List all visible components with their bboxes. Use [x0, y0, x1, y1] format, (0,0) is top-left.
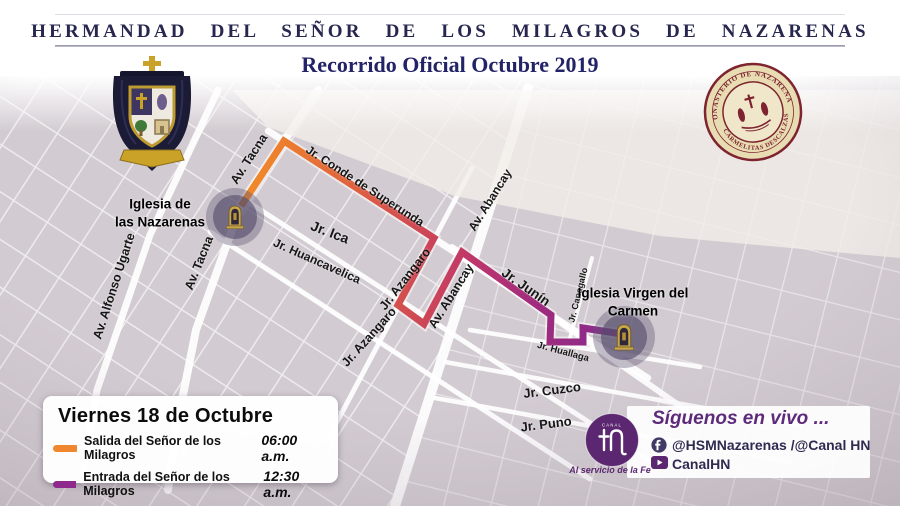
legend-item-time: 12:30 a.m.	[263, 468, 324, 500]
facebook-icon	[651, 437, 667, 453]
salida-route-swatch	[53, 444, 77, 453]
legend-item-entrada: Entrada del Señor de los Milagros 12:30 …	[53, 468, 324, 500]
svg-text:CANAL: CANAL	[602, 423, 622, 428]
facebook-handle: @HSMNazarenas /@Canal HN	[672, 437, 870, 453]
legend-item-salida: Salida del Señor de los Milagros 06:00 a…	[53, 432, 324, 464]
legend-panel: Viernes 18 de Octubre Salida del Señor d…	[43, 396, 338, 483]
canal-hn-logo: CANAL	[580, 408, 644, 472]
church-label-nazarenas: Iglesia de las Nazarenas	[115, 195, 205, 230]
legend-title: Viernes 18 de Octubre	[58, 405, 338, 428]
hermandad-crest-icon	[100, 54, 204, 180]
church-marker-nazarenas	[206, 188, 264, 246]
social-heading: Síguenos en vivo ...	[652, 408, 829, 430]
page-title: HERMANDAD DEL SEÑOR DE LOS MILAGROS DE N…	[0, 21, 900, 43]
youtube-handle: CanalHN	[672, 456, 730, 472]
legend-item-label: Entrada del Señor de los Milagros	[83, 470, 263, 498]
church-label-carmen: Iglesia Virgen del Carmen	[578, 284, 689, 319]
monasterio-seal-icon: MONASTERIO DE NAZARENAS CARMELITAS DESCA…	[698, 58, 808, 168]
header-rule-top	[55, 14, 845, 15]
youtube-icon	[651, 456, 668, 469]
entrada-route-swatch	[53, 480, 76, 489]
header-rule-bottom	[55, 45, 845, 47]
legend-item-time: 06:00 a.m.	[261, 432, 324, 464]
poster: HERMANDAD DEL SEÑOR DE LOS MILAGROS DE N…	[0, 0, 900, 506]
logo-tagline: Al servicio de la Fe	[569, 465, 651, 475]
legend-item-label: Salida del Señor de los Milagros	[84, 434, 261, 462]
